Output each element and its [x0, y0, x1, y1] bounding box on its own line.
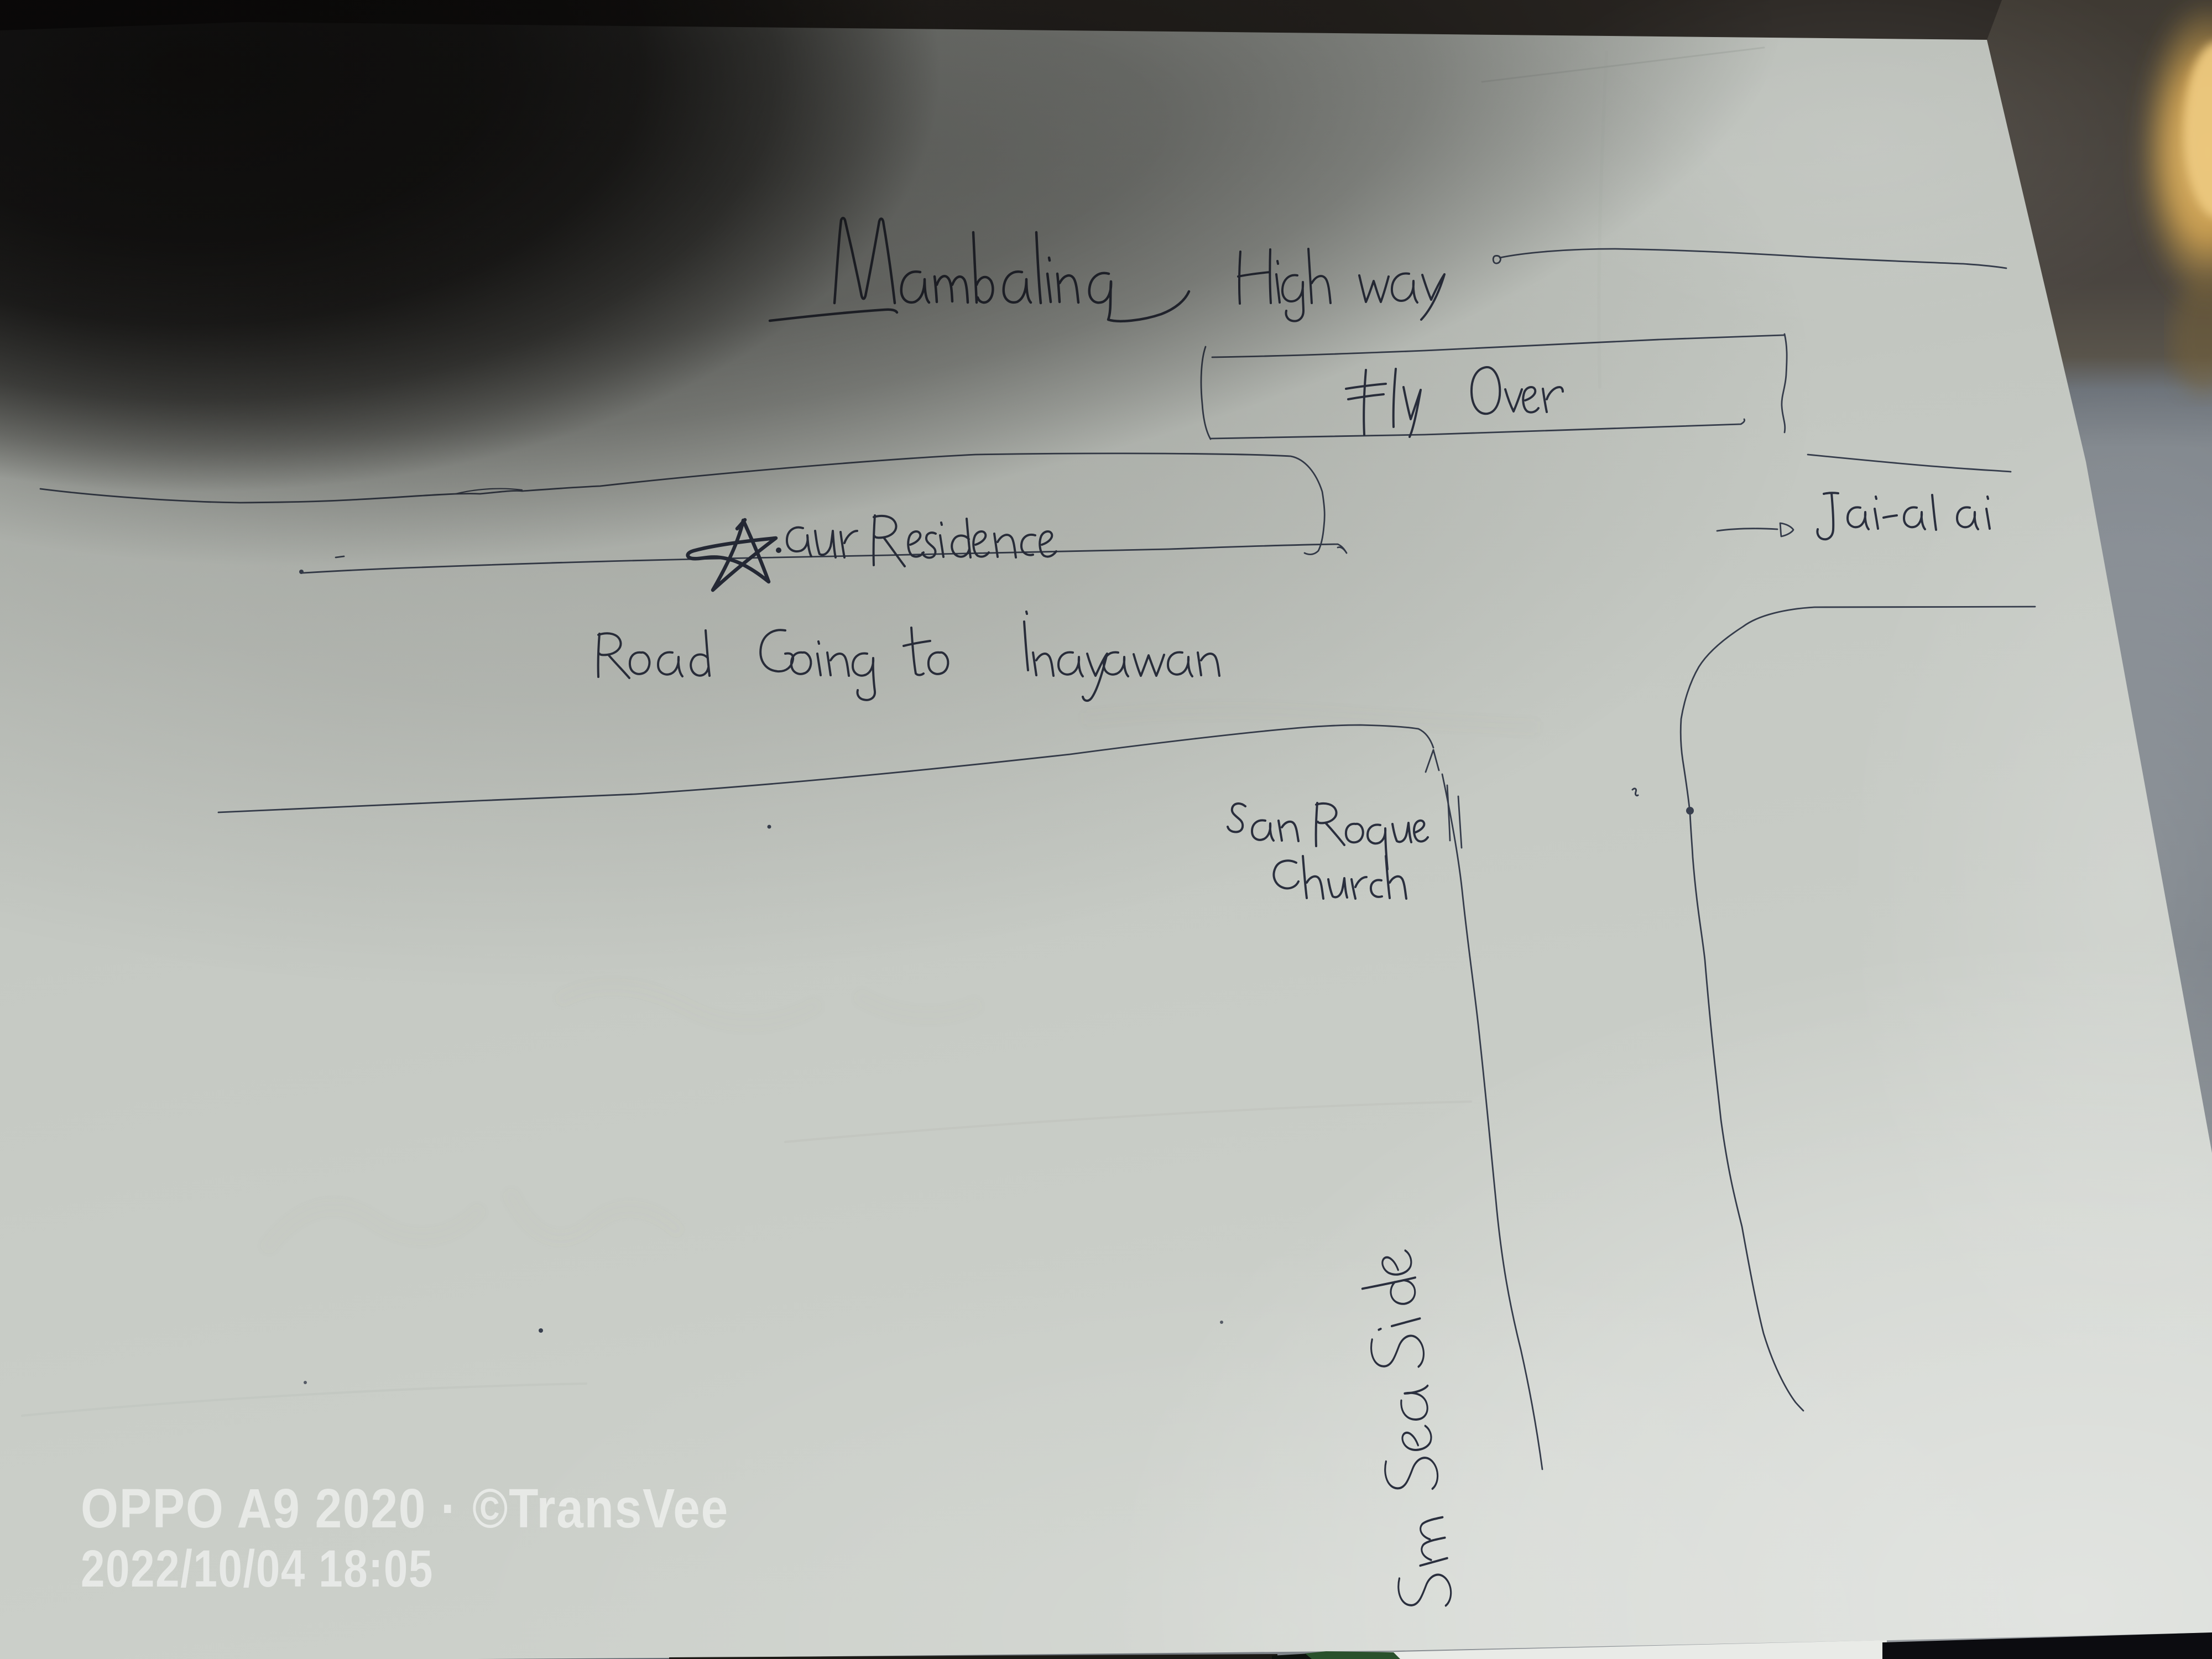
- svg-text:2022/10/04 18:05: 2022/10/04 18:05: [81, 1540, 434, 1598]
- svg-text:OPPO A9 2020 · ©TransVee: OPPO A9 2020 · ©TransVee: [81, 1478, 729, 1540]
